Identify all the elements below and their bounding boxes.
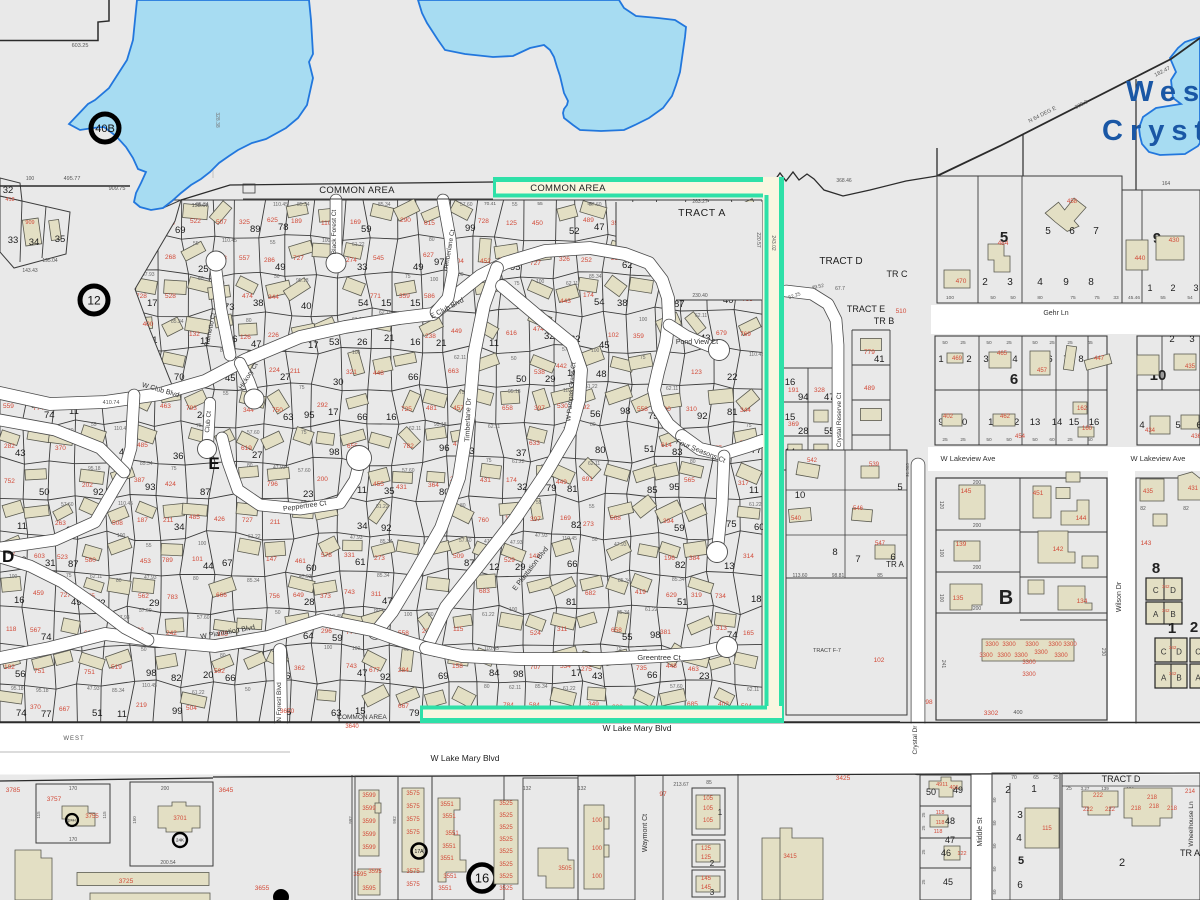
svg-text:760: 760: [478, 517, 489, 524]
svg-text:3300: 3300: [1002, 642, 1016, 648]
svg-text:17: 17: [571, 668, 582, 679]
svg-text:98.81: 98.81: [832, 573, 845, 579]
svg-text:47: 47: [945, 835, 955, 845]
svg-text:200: 200: [973, 523, 982, 529]
svg-text:419: 419: [635, 589, 646, 596]
svg-text:418: 418: [5, 197, 14, 203]
svg-text:263.27: 263.27: [692, 199, 708, 205]
svg-text:11: 11: [749, 485, 759, 496]
svg-text:85.34: 85.34: [377, 573, 390, 579]
svg-text:448: 448: [666, 663, 677, 670]
svg-text:619: 619: [241, 445, 252, 452]
svg-text:174: 174: [583, 292, 594, 299]
svg-text:381: 381: [660, 629, 671, 636]
svg-text:35: 35: [384, 486, 395, 497]
svg-text:431: 431: [480, 477, 491, 484]
svg-text:342: 342: [1169, 645, 1177, 650]
svg-text:139: 139: [1101, 786, 1109, 791]
svg-text:165: 165: [743, 630, 754, 637]
svg-text:400: 400: [143, 321, 154, 328]
svg-text:3599: 3599: [362, 793, 376, 799]
svg-text:196: 196: [664, 555, 675, 562]
svg-text:3: 3: [710, 888, 715, 897]
svg-text:50: 50: [986, 437, 992, 443]
svg-text:82: 82: [571, 520, 582, 531]
svg-text:25: 25: [960, 437, 966, 443]
svg-text:50: 50: [1032, 437, 1038, 443]
svg-text:80: 80: [246, 318, 252, 324]
svg-text:3415: 3415: [783, 854, 797, 860]
svg-text:448: 448: [373, 370, 384, 377]
svg-text:118: 118: [936, 820, 945, 826]
svg-text:224: 224: [269, 367, 280, 374]
svg-text:100: 100: [946, 295, 954, 301]
svg-text:160: 160: [1082, 426, 1093, 432]
svg-text:5: 5: [1175, 420, 1180, 431]
svg-text:50: 50: [39, 487, 50, 498]
svg-text:2: 2: [1119, 857, 1125, 869]
svg-text:62.11: 62.11: [588, 461, 600, 467]
svg-text:100: 100: [117, 533, 126, 539]
svg-text:66: 66: [357, 412, 368, 423]
svg-text:100: 100: [404, 612, 413, 618]
svg-text:TRACT A: TRACT A: [678, 207, 726, 219]
svg-text:771: 771: [370, 293, 381, 300]
svg-text:37: 37: [516, 448, 527, 459]
svg-text:3551: 3551: [442, 844, 456, 850]
svg-text:50: 50: [511, 356, 517, 362]
svg-text:59: 59: [332, 633, 343, 644]
svg-text:75: 75: [1094, 295, 1100, 301]
svg-text:3505: 3505: [558, 866, 572, 872]
svg-text:57.60: 57.60: [298, 468, 311, 474]
svg-text:55: 55: [91, 422, 97, 428]
svg-text:54: 54: [358, 298, 369, 309]
svg-text:100: 100: [26, 176, 35, 182]
svg-text:96: 96: [439, 443, 450, 454]
svg-text:143: 143: [1141, 540, 1152, 547]
svg-text:743: 743: [346, 663, 357, 670]
svg-text:132: 132: [523, 786, 532, 792]
svg-text:50: 50: [992, 866, 997, 872]
svg-text:410.74: 410.74: [103, 400, 120, 406]
svg-text:679: 679: [716, 330, 727, 337]
svg-text:50: 50: [942, 340, 948, 346]
svg-text:134: 134: [1077, 598, 1088, 605]
svg-text:33: 33: [1113, 295, 1119, 301]
svg-text:3302: 3302: [984, 710, 999, 717]
svg-text:218: 218: [1149, 804, 1160, 810]
svg-text:125: 125: [506, 220, 517, 227]
svg-text:592: 592: [214, 668, 225, 675]
svg-text:85.34: 85.34: [247, 578, 260, 584]
svg-text:25: 25: [960, 340, 966, 346]
svg-text:West: West: [1126, 76, 1200, 108]
svg-text:122: 122: [957, 851, 966, 857]
svg-text:75: 75: [405, 274, 411, 280]
svg-text:2: 2: [1169, 334, 1174, 345]
svg-text:3300: 3300: [985, 642, 999, 648]
svg-text:344: 344: [740, 407, 751, 414]
svg-text:435: 435: [1185, 364, 1196, 370]
svg-text:3300: 3300: [1014, 653, 1028, 659]
svg-text:147: 147: [266, 556, 277, 563]
svg-text:61.22: 61.22: [352, 242, 365, 248]
svg-text:384: 384: [689, 555, 700, 562]
svg-text:115: 115: [453, 626, 464, 633]
svg-text:735: 735: [636, 665, 647, 672]
svg-text:92: 92: [381, 523, 392, 534]
svg-text:21: 21: [384, 333, 395, 344]
svg-text:200: 200: [161, 786, 170, 792]
svg-text:328.38: 328.38: [214, 112, 220, 128]
svg-text:D: D: [1170, 586, 1176, 595]
svg-text:751: 751: [34, 668, 45, 675]
svg-text:397: 397: [530, 516, 541, 523]
svg-text:142: 142: [1053, 546, 1064, 553]
svg-text:COMMON AREA: COMMON AREA: [337, 714, 387, 721]
svg-text:79: 79: [409, 708, 420, 719]
svg-text:54: 54: [1187, 295, 1193, 301]
svg-text:430: 430: [1169, 237, 1180, 244]
svg-text:105: 105: [703, 806, 714, 812]
svg-text:25: 25: [942, 437, 948, 443]
svg-text:85.34: 85.34: [589, 274, 602, 280]
svg-text:455: 455: [373, 481, 384, 488]
svg-text:50: 50: [141, 647, 147, 653]
svg-text:47.93: 47.93: [535, 533, 548, 539]
svg-text:769: 769: [740, 331, 751, 338]
svg-text:40: 40: [301, 301, 312, 312]
svg-text:105: 105: [703, 796, 714, 802]
svg-text:87: 87: [68, 559, 79, 570]
svg-text:545: 545: [373, 255, 384, 262]
svg-text:100: 100: [938, 549, 944, 558]
svg-text:81: 81: [727, 407, 738, 418]
svg-text:33: 33: [357, 262, 368, 273]
svg-text:463: 463: [688, 666, 699, 673]
svg-text:80: 80: [1037, 295, 1043, 301]
svg-text:A: A: [1161, 673, 1167, 682]
svg-text:162: 162: [1077, 406, 1088, 412]
svg-text:50: 50: [1032, 340, 1038, 346]
svg-text:3.27: 3.27: [1081, 786, 1090, 791]
svg-text:2: 2: [966, 354, 971, 365]
svg-text:3595: 3595: [353, 872, 367, 878]
svg-text:A: A: [1195, 673, 1200, 682]
svg-text:426: 426: [214, 516, 225, 523]
svg-text:125: 125: [701, 846, 712, 852]
svg-text:658: 658: [502, 405, 513, 412]
svg-text:100: 100: [352, 646, 361, 652]
svg-text:909.75: 909.75: [109, 186, 126, 192]
svg-text:319: 319: [691, 592, 702, 599]
svg-text:434: 434: [1145, 428, 1156, 434]
svg-text:3300: 3300: [1048, 642, 1062, 648]
svg-text:145: 145: [961, 488, 972, 495]
svg-text:57.60: 57.60: [61, 502, 74, 508]
svg-text:9: 9: [1063, 277, 1069, 288]
svg-text:115: 115: [36, 811, 41, 819]
svg-text:47.93: 47.93: [87, 686, 100, 692]
svg-text:99: 99: [465, 223, 476, 234]
svg-text:292: 292: [317, 402, 328, 409]
svg-text:11: 11: [489, 338, 499, 349]
svg-text:3551: 3551: [442, 814, 456, 820]
svg-text:614: 614: [661, 442, 672, 449]
svg-text:80: 80: [484, 684, 490, 690]
svg-text:65: 65: [1033, 775, 1039, 781]
svg-text:38: 38: [617, 298, 628, 309]
svg-text:442: 442: [556, 363, 567, 370]
svg-text:98: 98: [329, 447, 340, 458]
svg-text:565: 565: [684, 477, 695, 484]
svg-text:431: 431: [1188, 486, 1199, 492]
svg-text:2: 2: [982, 277, 988, 288]
svg-text:E: E: [208, 454, 219, 473]
svg-text:10: 10: [795, 490, 806, 501]
svg-text:100: 100: [591, 348, 600, 354]
svg-text:436: 436: [1191, 434, 1200, 440]
svg-text:359: 359: [633, 333, 644, 340]
svg-text:6: 6: [1069, 226, 1075, 237]
svg-text:219: 219: [136, 702, 147, 709]
svg-text:158.67: 158.67: [192, 203, 209, 209]
svg-text:3: 3: [1017, 810, 1023, 821]
svg-text:691: 691: [582, 476, 593, 483]
svg-text:99: 99: [172, 706, 183, 717]
svg-text:TRACT F-7: TRACT F-7: [813, 648, 841, 654]
svg-text:80: 80: [460, 503, 466, 509]
svg-text:3: 3: [983, 354, 988, 365]
svg-text:49: 49: [275, 262, 286, 273]
svg-text:3300: 3300: [1034, 650, 1048, 656]
svg-text:2: 2: [1170, 283, 1175, 293]
svg-text:110.45: 110.45: [118, 501, 133, 507]
svg-text:61.22: 61.22: [749, 502, 762, 508]
svg-text:461: 461: [295, 558, 306, 565]
svg-text:23: 23: [699, 671, 710, 682]
svg-text:D: D: [2, 547, 14, 566]
svg-text:469: 469: [952, 356, 963, 362]
svg-text:275: 275: [581, 666, 592, 673]
svg-text:200: 200: [973, 565, 982, 571]
svg-text:85: 85: [647, 485, 658, 496]
svg-text:Crystal Dr: Crystal Dr: [912, 725, 919, 755]
svg-text:603.25: 603.25: [72, 43, 89, 49]
svg-text:3575: 3575: [406, 830, 420, 836]
svg-text:397: 397: [534, 405, 545, 412]
svg-text:4: 4: [1012, 354, 1017, 365]
svg-text:95.18: 95.18: [11, 686, 24, 692]
svg-text:21: 21: [436, 338, 447, 349]
svg-text:3300: 3300: [997, 653, 1011, 659]
svg-text:616: 616: [506, 330, 517, 337]
svg-text:222: 222: [1105, 807, 1116, 813]
svg-text:25: 25: [1006, 340, 1012, 346]
svg-text:82: 82: [1183, 506, 1189, 512]
svg-text:3785: 3785: [6, 787, 21, 794]
svg-text:50: 50: [274, 274, 280, 280]
svg-text:55: 55: [622, 632, 633, 643]
svg-text:W Lake Mary Blvd: W Lake Mary Blvd: [431, 753, 500, 763]
svg-text:11: 11: [357, 485, 367, 496]
svg-text:284: 284: [398, 667, 409, 674]
svg-text:3595: 3595: [362, 886, 376, 892]
svg-text:34: 34: [357, 521, 368, 532]
svg-text:663: 663: [448, 368, 459, 375]
svg-text:87: 87: [674, 299, 685, 310]
svg-text:725: 725: [401, 406, 412, 413]
svg-text:364: 364: [428, 482, 439, 489]
svg-text:321: 321: [346, 369, 357, 376]
svg-text:3525: 3525: [499, 801, 513, 807]
svg-text:55: 55: [536, 500, 542, 506]
svg-text:59: 59: [361, 224, 372, 235]
svg-text:123: 123: [691, 369, 702, 376]
svg-text:211: 211: [290, 368, 301, 375]
svg-text:110.45: 110.45: [222, 238, 237, 244]
svg-text:8: 8: [1088, 277, 1094, 288]
svg-text:75: 75: [640, 355, 646, 361]
svg-text:132: 132: [189, 331, 200, 338]
svg-text:110.45: 110.45: [749, 352, 764, 358]
svg-text:3525: 3525: [499, 813, 513, 819]
svg-text:615: 615: [424, 220, 435, 227]
svg-text:273: 273: [374, 555, 385, 562]
svg-text:17: 17: [147, 298, 158, 309]
svg-text:47.93: 47.93: [273, 465, 286, 471]
svg-text:3525: 3525: [499, 837, 513, 843]
svg-text:75: 75: [514, 281, 520, 287]
svg-text:75: 75: [299, 385, 305, 391]
svg-text:290: 290: [400, 217, 411, 224]
svg-text:80: 80: [220, 653, 226, 659]
svg-text:683: 683: [479, 588, 490, 595]
svg-text:15: 15: [381, 298, 392, 309]
svg-text:50: 50: [516, 374, 527, 385]
svg-text:649: 649: [293, 592, 304, 599]
svg-text:3599: 3599: [362, 819, 376, 825]
svg-text:WEST: WEST: [63, 736, 84, 742]
svg-text:538: 538: [534, 369, 545, 376]
svg-text:25: 25: [1067, 340, 1073, 346]
svg-text:66: 66: [567, 559, 578, 570]
svg-text:51: 51: [92, 708, 103, 719]
svg-text:510: 510: [896, 308, 907, 315]
svg-text:524: 524: [530, 630, 541, 637]
svg-text:682: 682: [585, 590, 596, 597]
svg-text:311: 311: [557, 626, 568, 633]
svg-text:62.11: 62.11: [566, 281, 578, 287]
svg-text:8: 8: [1152, 560, 1160, 577]
svg-text:139: 139: [956, 541, 967, 548]
svg-text:80: 80: [690, 459, 696, 465]
svg-text:61.22: 61.22: [585, 384, 598, 390]
svg-text:48: 48: [596, 369, 607, 380]
svg-text:3300: 3300: [1063, 642, 1077, 648]
svg-text:28: 28: [798, 426, 809, 437]
svg-text:13: 13: [1030, 417, 1041, 428]
svg-text:100: 100: [322, 238, 331, 244]
svg-text:75: 75: [196, 423, 202, 429]
svg-text:69: 69: [175, 225, 186, 236]
svg-text:Middle St: Middle St: [977, 817, 984, 846]
svg-text:200: 200: [317, 476, 328, 483]
svg-text:61.22: 61.22: [563, 686, 576, 692]
svg-text:44: 44: [203, 561, 214, 572]
svg-text:51: 51: [644, 444, 655, 455]
svg-text:25: 25: [1067, 437, 1073, 443]
svg-text:666: 666: [216, 592, 227, 599]
svg-text:62.11: 62.11: [488, 424, 500, 430]
svg-text:85.34: 85.34: [378, 202, 391, 208]
svg-text:449: 449: [451, 328, 462, 335]
svg-text:169: 169: [350, 219, 361, 226]
svg-text:150: 150: [132, 816, 137, 824]
svg-text:218: 218: [1131, 806, 1142, 812]
svg-text:286: 286: [264, 257, 275, 264]
svg-text:311: 311: [371, 591, 382, 598]
svg-text:95: 95: [669, 482, 680, 493]
svg-text:3425: 3425: [836, 775, 851, 782]
svg-text:174: 174: [506, 477, 517, 484]
svg-text:TR A: TR A: [886, 560, 904, 569]
svg-text:98: 98: [925, 699, 933, 706]
svg-text:25: 25: [921, 812, 926, 818]
svg-text:220.57: 220.57: [755, 232, 761, 248]
svg-text:115: 115: [1042, 826, 1052, 832]
svg-text:743: 743: [344, 589, 355, 596]
svg-text:64: 64: [303, 631, 314, 642]
svg-text:62.11: 62.11: [409, 426, 421, 432]
svg-text:4: 4: [1139, 420, 1144, 431]
svg-text:214: 214: [1185, 789, 1196, 795]
svg-text:Wilson Dr: Wilson Dr: [1116, 581, 1123, 612]
svg-text:1: 1: [718, 808, 723, 817]
svg-text:100: 100: [324, 645, 333, 651]
svg-text:60: 60: [754, 522, 765, 533]
svg-text:387: 387: [134, 477, 145, 484]
svg-text:56: 56: [15, 669, 26, 680]
svg-text:75: 75: [486, 458, 492, 464]
svg-text:462: 462: [1000, 414, 1011, 420]
svg-text:C: C: [1195, 647, 1200, 656]
svg-text:100: 100: [639, 317, 648, 323]
svg-text:728: 728: [478, 218, 489, 225]
svg-text:3599: 3599: [362, 806, 376, 812]
svg-text:470: 470: [956, 278, 967, 285]
svg-text:102: 102: [608, 332, 619, 339]
svg-text:3300: 3300: [1022, 672, 1036, 678]
svg-text:495.77: 495.77: [64, 176, 81, 182]
svg-text:3551: 3551: [438, 886, 452, 892]
svg-text:92: 92: [697, 411, 708, 422]
svg-text:50: 50: [1010, 295, 1016, 301]
svg-text:268: 268: [165, 254, 176, 261]
svg-text:17: 17: [328, 407, 339, 418]
svg-text:84: 84: [489, 668, 500, 679]
svg-text:61: 61: [355, 557, 366, 568]
svg-text:50: 50: [245, 687, 251, 693]
svg-text:50: 50: [992, 889, 997, 895]
svg-text:55: 55: [589, 504, 595, 510]
svg-text:317: 317: [738, 480, 749, 487]
svg-text:3575: 3575: [406, 804, 420, 810]
svg-text:400: 400: [1013, 710, 1022, 716]
svg-text:658: 658: [611, 627, 622, 634]
svg-text:TRACT D: TRACT D: [819, 256, 862, 267]
